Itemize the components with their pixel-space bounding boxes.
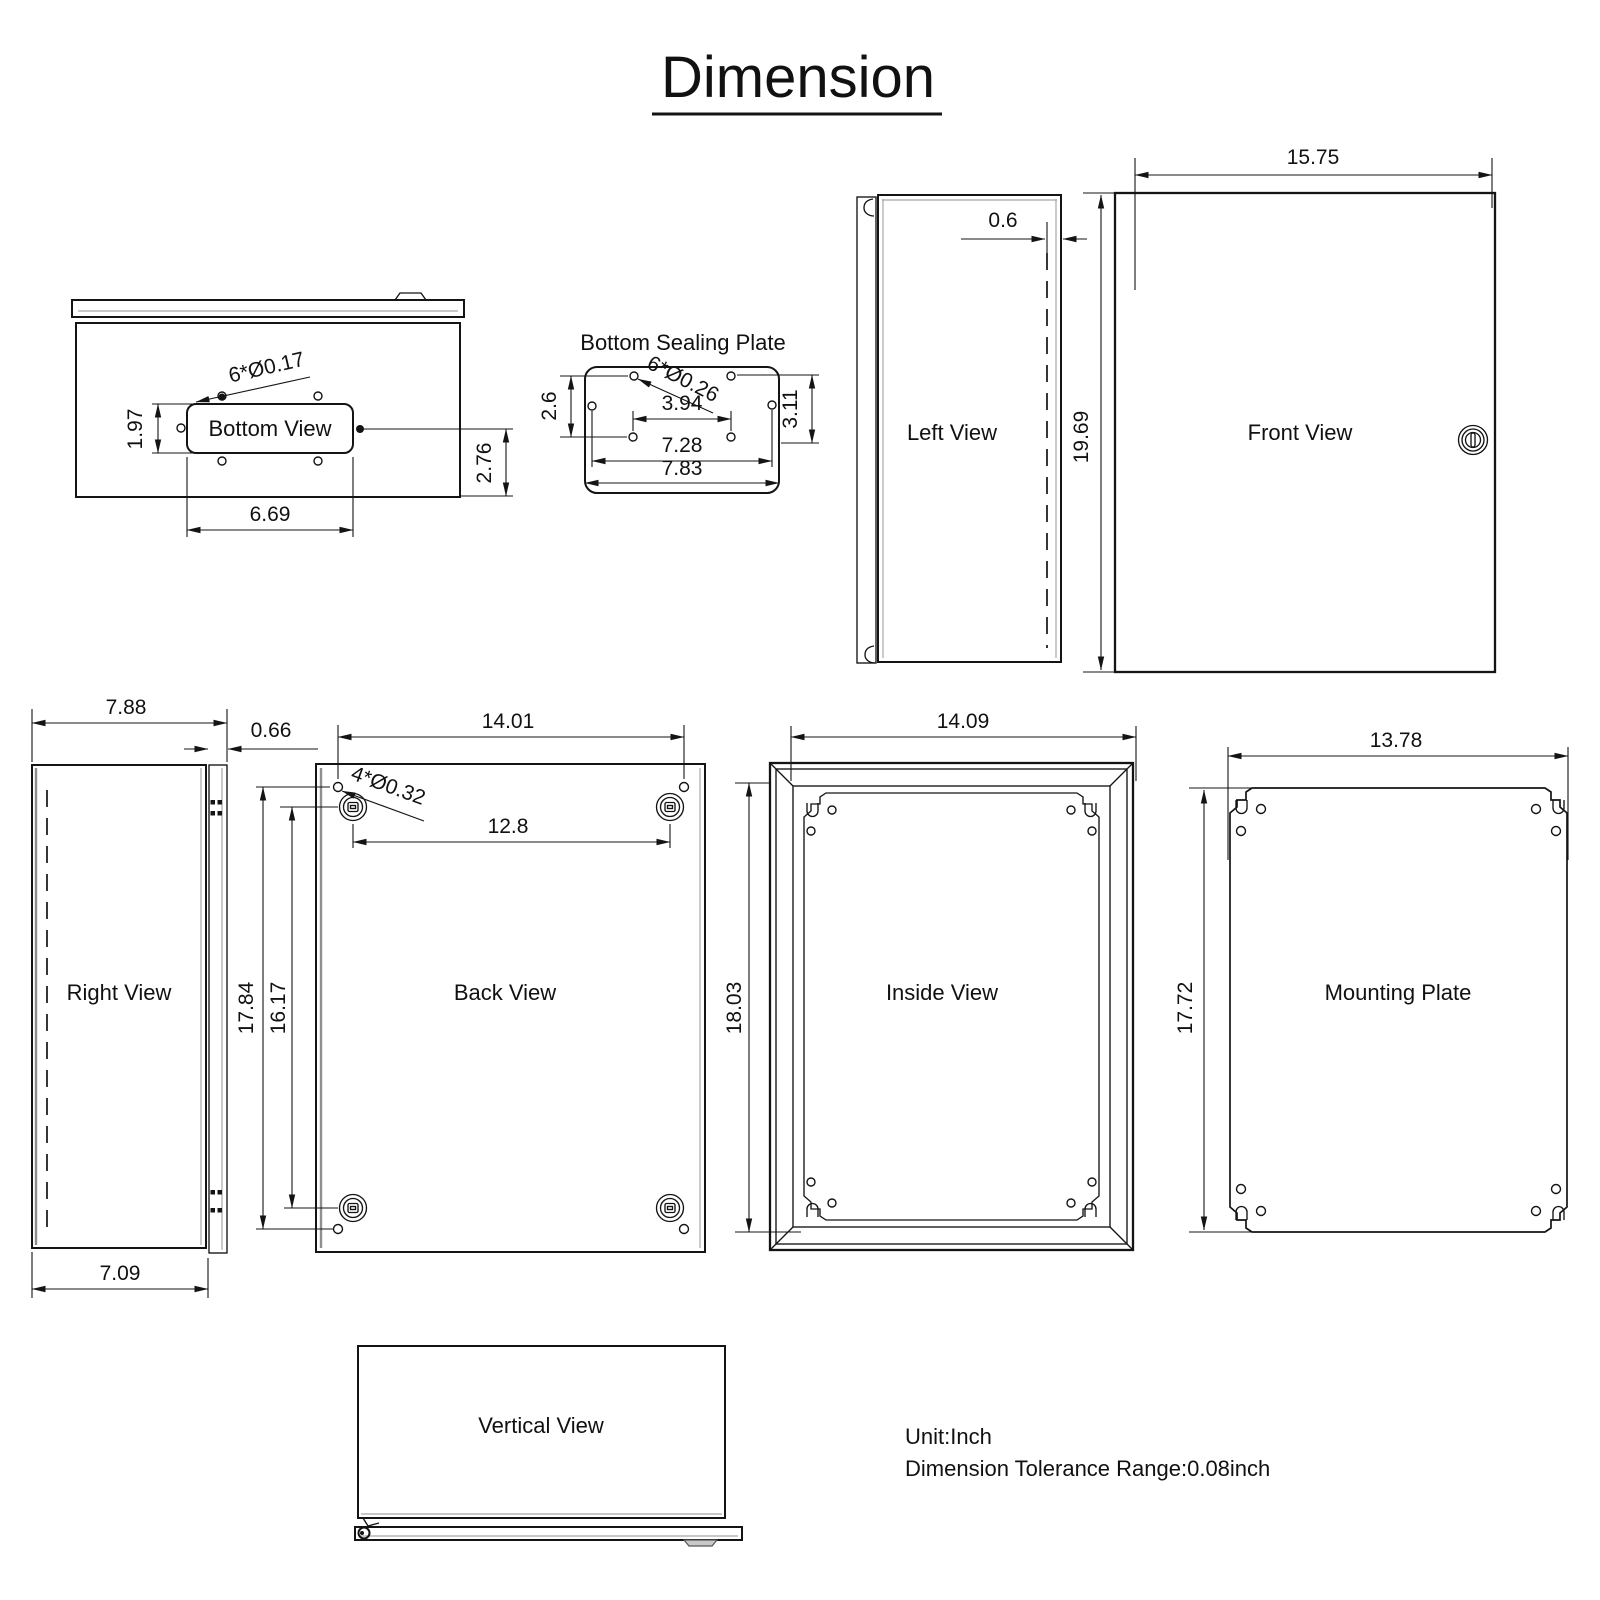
dim-text: 17.72	[1174, 982, 1197, 1035]
dim-text: 2.6	[538, 391, 561, 420]
dim-text: 17.84	[235, 981, 258, 1034]
hinge-hook-top	[864, 199, 874, 216]
corner-bevel	[1110, 763, 1133, 786]
bottom-view-lid	[72, 300, 464, 317]
dim-text: 6*Ø0.17	[226, 348, 306, 388]
dim-text: 0.6	[988, 209, 1017, 232]
dim-hole-span-h: 12.8	[353, 815, 670, 848]
inner-mounting-plate-outline	[804, 793, 1099, 1220]
dim-text: 7.88	[106, 696, 147, 719]
dim-text: 15.75	[1287, 146, 1340, 169]
plate-corner-holes	[807, 806, 1096, 1207]
dim-text: 18.03	[723, 982, 746, 1035]
mounting-plate-outline	[1230, 788, 1567, 1232]
dim-text: 12.8	[488, 815, 529, 838]
inside-view-label: Inside View	[886, 980, 998, 1005]
right-view-label: Right View	[67, 980, 172, 1005]
plate-corner-holes	[1237, 805, 1561, 1216]
hinge-pin	[360, 1531, 364, 1535]
dim-text: 16.17	[267, 982, 290, 1035]
dim-plate-height: 17.72	[1174, 788, 1251, 1232]
notes-block: Unit:Inch Dimension Tolerance Range:0.08…	[905, 1424, 1270, 1481]
latch-bump	[684, 1540, 717, 1546]
dim-text: 1.97	[124, 409, 147, 450]
dim-back-width: 14.01	[338, 710, 684, 779]
corner-bevel	[1110, 1227, 1133, 1250]
title-block: Dimension	[652, 45, 942, 114]
mounting-bosses	[340, 794, 684, 1222]
dim-text: 14.09	[937, 710, 990, 733]
mounting-plate-label: Mounting Plate	[1325, 980, 1472, 1005]
back-view-label: Back View	[454, 980, 556, 1005]
dimension-drawing-page: Dimension Bottom View 6*Ø0.17 1.97	[0, 0, 1600, 1600]
mounting-plate: 13.78 17.72 Mounting Plate	[1174, 729, 1568, 1232]
bottom-view: Bottom View 6*Ø0.17 1.97 2.76	[72, 293, 513, 537]
door-panel-edge	[355, 1527, 742, 1540]
dim-boss-span-v: 16.17	[267, 807, 338, 1208]
dim-text: 3.94	[662, 392, 703, 415]
dim-door-edge: 0.6	[961, 209, 1087, 253]
hinge-mark	[363, 1518, 379, 1526]
hinge-hook-bottom	[865, 646, 875, 663]
dim-side-offset: 2.76	[360, 429, 513, 496]
dim-text: 7.28	[662, 434, 703, 457]
corner-bevel	[770, 1227, 793, 1250]
front-view-label: Front View	[1248, 420, 1353, 445]
dim-hole-rows: 2.6	[538, 376, 628, 437]
corner-holes	[334, 783, 689, 1234]
dim-cutout-height: 1.97	[124, 404, 200, 453]
sealing-plate-label: Bottom Sealing Plate	[580, 330, 785, 355]
door-edge-strip	[209, 765, 227, 1253]
dim-text: 3.11	[779, 389, 802, 428]
tolerance-note: Dimension Tolerance Range:0.08inch	[905, 1456, 1270, 1481]
dim-body-depth: 7.09	[32, 1252, 208, 1298]
dim-text: 6.69	[250, 503, 291, 526]
dim-text: 14.01	[482, 710, 535, 733]
dim-bottom-holes: 6*Ø0.17	[196, 348, 310, 402]
left-view-label: Left View	[907, 420, 997, 445]
back-view: 14.01 4*Ø0.32 12.8 17.84 16.17 Back View	[235, 710, 705, 1252]
dim-inside-width: 14.09	[791, 710, 1136, 781]
right-view-body	[32, 765, 206, 1248]
dim-plate-width: 13.78	[1228, 729, 1568, 860]
dim-depth: 7.88	[32, 696, 227, 762]
drawing-canvas: Dimension Bottom View 6*Ø0.17 1.97	[0, 0, 1600, 1600]
door-edge-strip	[857, 197, 876, 663]
vertical-view: Vertical View	[355, 1346, 742, 1546]
dim-text: 13.78	[1370, 729, 1423, 752]
page-title: Dimension	[661, 45, 935, 110]
dim-text: 4*Ø0.32	[348, 762, 428, 810]
bottom-view-label: Bottom View	[208, 416, 331, 441]
frame-opening	[793, 786, 1110, 1227]
lock-icon	[1459, 426, 1488, 455]
dim-text: 7.83	[662, 457, 703, 480]
front-view: 15.75 19.69 Front View	[1070, 146, 1495, 672]
corner-bevel	[770, 763, 793, 786]
inside-view-frame	[770, 763, 1133, 1250]
latch-bump	[395, 293, 426, 300]
dim-inside-height: 18.03	[723, 783, 801, 1232]
bottom-sealing-plate: Bottom Sealing Plate 6*Ø0.26 2.6 3.11	[538, 330, 819, 493]
left-view: 0.6 Left View	[857, 195, 1087, 663]
vertical-view-label: Vertical View	[478, 1413, 604, 1438]
dim-text: 2.76	[473, 443, 496, 484]
hinge-dots-top	[211, 800, 223, 816]
dim-text: 0.66	[251, 719, 292, 742]
dim-front-height: 19.69	[1070, 193, 1115, 672]
plate-corner-slots	[807, 803, 1096, 1217]
dim-front-width: 15.75	[1135, 146, 1492, 290]
dim-text: 19.69	[1070, 411, 1093, 464]
plate-corner-slots	[1236, 800, 1564, 1220]
hinge-dots-bottom	[211, 1190, 223, 1213]
frame-inner-line	[776, 769, 1127, 1244]
inside-view: 14.09 18.03 Inside View	[723, 710, 1136, 1250]
dim-text: 7.09	[100, 1262, 141, 1285]
unit-note: Unit:Inch	[905, 1424, 992, 1449]
